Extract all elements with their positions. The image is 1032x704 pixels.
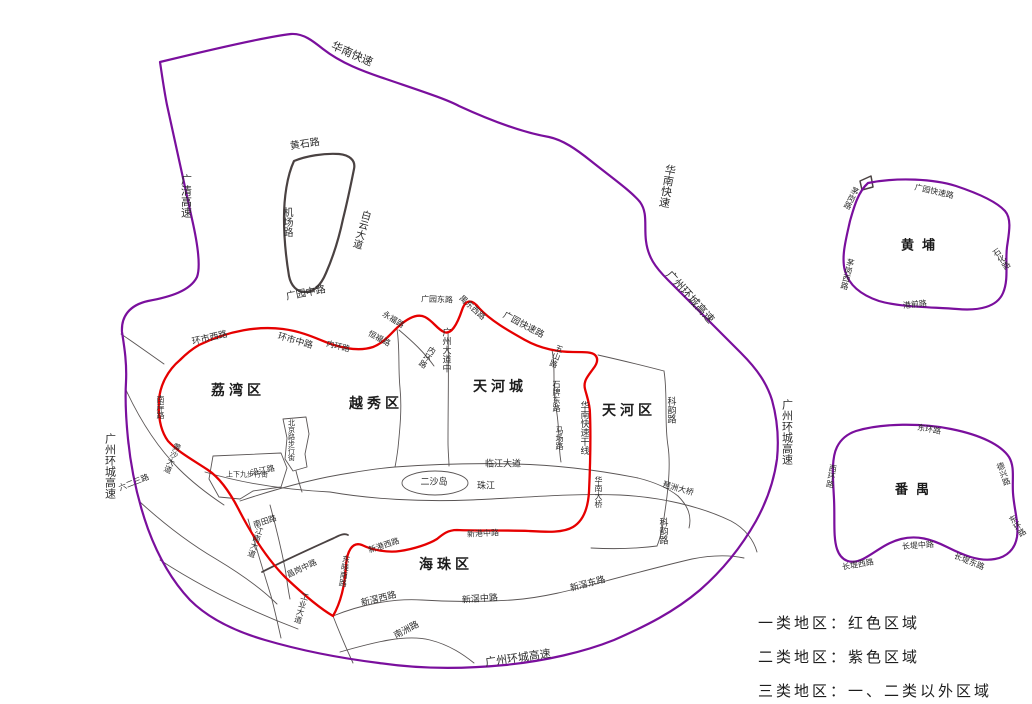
map-label: 越秀区 [349,397,403,411]
legend: 一类地区：红色区域 二类地区：紫色区域 三类地区：一、二类以外区域 [758,612,992,704]
map-labels: 华南快速广清高速华南快速广州环城高速广州环城高速广州环城高速广州环城高速黄石路机… [0,0,1032,704]
map-label: 广园快速路 [914,184,955,201]
map-label: 华南快速干线 [579,401,588,455]
map-label: 六二三路 [118,473,151,492]
map-label: 天河区 [602,404,656,418]
map-label: 黄沙大道 [162,442,181,475]
map-label: 科韵路 [666,397,675,424]
map-label: 东环路 [1007,514,1027,538]
map-label: 茅岗西路 [839,258,855,291]
map-label: 石牌东路 [552,380,560,412]
map-label: 广清高速 [181,174,192,218]
map-label: 港前路 [903,300,928,310]
map-label: 马场路 [555,426,563,450]
map-label: 海珠区 [419,558,473,572]
map-label: 北京路步行街 [288,419,295,461]
map-label: 长堤西路 [842,558,875,571]
map-label: 广园快速路 [501,311,545,340]
map-label: 五山路 [548,343,564,368]
map-label: 工业大道 [293,592,310,625]
map-label: 临江大道 [485,461,521,470]
map-label: 黄石路 [289,138,320,153]
map-label: 西环路 [825,463,837,488]
map-label: 内环路 [417,345,437,370]
map-label: 荔湾区 [211,384,265,398]
map-label: 长堤中路 [902,541,934,551]
map-label: 昌岗中路 [286,559,318,580]
map-label: 新滘西路 [360,591,397,608]
map-label: 新港中路 [467,529,499,539]
map-label: 新滘中路 [462,594,499,605]
map-label: 江南大道 [246,526,263,559]
map-label: 华南快速 [658,163,676,208]
map-label: 上下九步行街 [226,472,268,479]
map-label: 天河城 [473,380,527,394]
map-label: 广州环城高速 [105,433,116,499]
map-label: 南田路 [252,514,277,529]
map-label: 南洲路 [393,621,421,642]
map-label: 茅岗路 [842,185,860,210]
map-label: 广园东路 [421,295,453,304]
map-label: 科韵路 [658,518,667,545]
map-label: 琶洲大桥 [662,481,695,498]
map-label: 恒福路 [367,330,392,348]
map-label: 环市中路 [276,333,313,352]
map-label: 东晓南路 [338,555,350,588]
map-label: 环市西路 [191,331,228,348]
legend-item-class3: 三类地区：一、二类以外区域 [758,680,992,701]
map-label: 白云大道 [350,208,371,249]
legend-item-class2: 二类地区：紫色区域 [758,646,992,667]
map-label: 机场路 [281,207,291,237]
map-label: 广州环城高速 [782,399,793,465]
map-label: 番禺 [895,484,937,497]
map-label: 新滘东路 [569,576,606,594]
map-label: 黄埔 [901,240,943,253]
map-label: 内环路 [325,340,350,354]
map-label: 禺东西路 [457,294,486,321]
map-label: 永福路 [381,310,406,330]
map-label: 珠江 [477,483,495,492]
map-label: 广州大道中 [441,328,450,373]
map-label: 新港西路 [368,537,401,554]
map-label: 长堤东路 [953,552,986,571]
map-label: 广州环城高速 [664,269,716,325]
map-label: 南岸路 [156,395,164,419]
map-label: 广州环城高速 [485,648,552,668]
map-label: 华南快速 [330,40,375,68]
zoning-map-canvas: 华南快速广清高速华南快速广州环城高速广州环城高速广州环城高速广州环城高速黄石路机… [0,0,1032,704]
map-label: 华南大桥 [594,476,602,508]
map-label: 东环路 [916,424,941,436]
map-label: 石化路 [991,247,1011,271]
map-label: 德兴路 [995,461,1011,486]
map-label: 广园中路 [285,285,326,302]
map-label: 二沙岛 [420,479,447,488]
legend-item-class1: 一类地区：红色区域 [758,612,992,633]
